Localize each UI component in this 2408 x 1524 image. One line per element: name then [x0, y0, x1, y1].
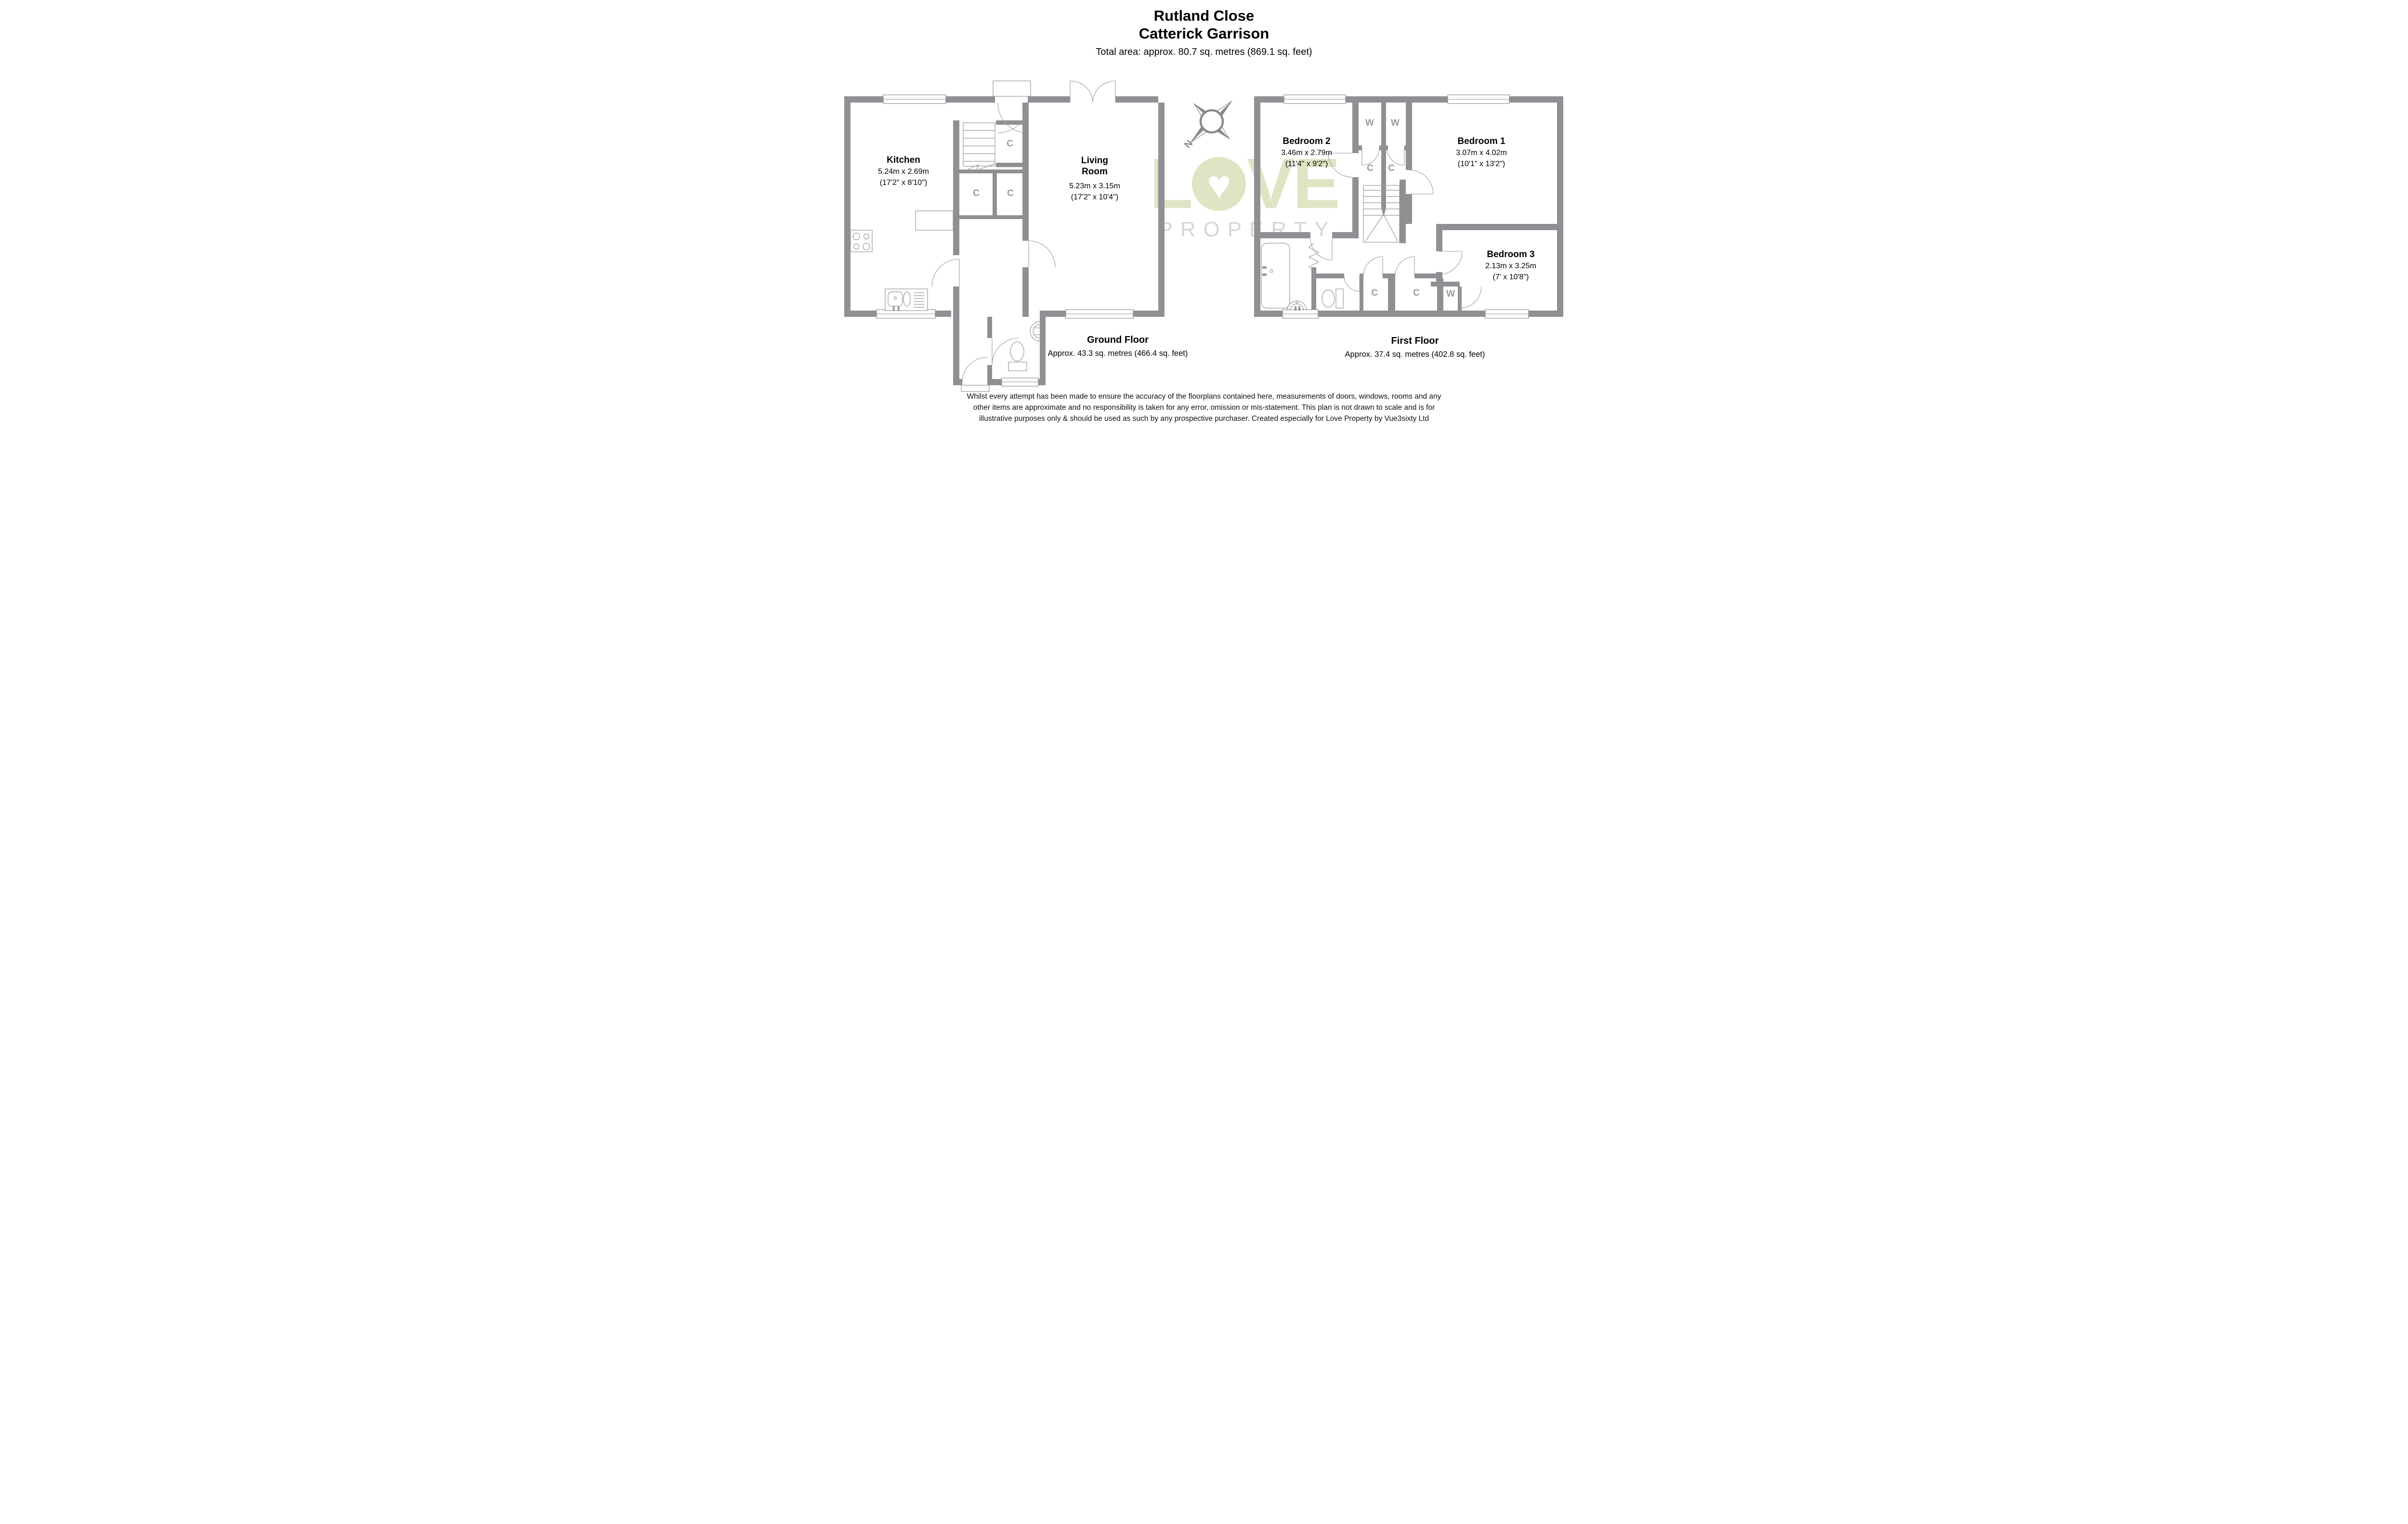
- closet-label: C: [1004, 188, 1017, 199]
- wardrobe-label: W: [1363, 118, 1376, 129]
- kitchen-dims-imperial: (17'2" x 8'10"): [865, 177, 942, 188]
- bedroom3-label: Bedroom 3 2.13m x 3.25m (7' x 10'8"): [1472, 249, 1549, 283]
- bedroom2-label: Bedroom 2 3.46m x 2.79m (11'4" x 9'2"): [1268, 136, 1345, 169]
- disclaimer-line1: Whilst every attempt has been made to en…: [905, 391, 1503, 402]
- kitchen-counter: [916, 211, 953, 230]
- first-floor-title: First Floor: [1343, 336, 1487, 347]
- toilet-icon: [1322, 289, 1343, 308]
- wardrobe2-door-arc: [1387, 148, 1404, 165]
- kitchen-label: Kitchen 5.24m x 2.69m (17'2" x 8'10"): [865, 155, 942, 188]
- french-door-arc-2: [1093, 81, 1115, 102]
- bathtub-icon: [1261, 243, 1290, 308]
- wc-basin-icon: [1030, 322, 1040, 341]
- living-room-name-line2: Room: [1061, 167, 1128, 178]
- bedroom1-door-arc: [1409, 170, 1433, 194]
- closet4-door-arc: [1395, 257, 1414, 276]
- closet-label: C: [970, 188, 982, 199]
- closet-label: C: [1368, 288, 1381, 299]
- wardrobe-label: W: [1389, 118, 1401, 129]
- kitchen-dims-metric: 5.24m x 2.69m: [865, 166, 942, 177]
- first-floor-caption: First Floor Approx. 37.4 sq. metres (402…: [1343, 336, 1487, 359]
- disclaimer: Whilst every attempt has been made to en…: [905, 391, 1503, 424]
- bedroom1-label: Bedroom 1 3.07m x 4.02m (10'1" x 13'2"): [1443, 136, 1520, 169]
- wc-fixtures: [1008, 322, 1040, 371]
- wc-toilet-icon: [1008, 342, 1027, 371]
- first-floor-plan: [1254, 95, 1563, 318]
- basin-icon: [1287, 301, 1307, 311]
- front-porch: [993, 81, 1031, 96]
- french-door-arc: [1070, 81, 1093, 102]
- wardrobe1-door-arc: [1362, 148, 1379, 165]
- kitchen-name: Kitchen: [865, 155, 942, 166]
- ground-floor-title: Ground Floor: [1046, 335, 1190, 346]
- bedroom2-dims-imperial: (11'4" x 9'2"): [1268, 158, 1345, 169]
- bedroom3-name: Bedroom 3: [1472, 249, 1549, 261]
- radiator-icon: [1309, 243, 1319, 271]
- ground-floor-caption: Ground Floor Approx. 43.3 sq. metres (46…: [1046, 335, 1190, 358]
- first-floor-walls: [1254, 96, 1563, 317]
- first-floor-area: Approx. 37.4 sq. metres (402.8 sq. feet): [1343, 350, 1487, 359]
- disclaimer-line2: other items are approximate and no respo…: [905, 402, 1503, 413]
- closet-label: C: [1410, 288, 1423, 299]
- living-room-dims-imperial: (17'2" x 10'4"): [1061, 192, 1128, 203]
- living-door-arc: [1029, 241, 1055, 267]
- bathroom-door-arc: [1310, 238, 1332, 260]
- floorplan-drawing: N: [826, 0, 1582, 430]
- closet-label: C: [1364, 163, 1376, 174]
- living-room-name-line1: Living: [1061, 156, 1128, 167]
- living-room-label: Living Room 5.23m x 3.15m (17'2" x 10'4"…: [1061, 156, 1128, 203]
- bedroom1-dims-imperial: (10'1" x 13'2"): [1443, 158, 1520, 169]
- bedroom3-wardrobe-door-arc: [1460, 287, 1481, 308]
- ground-floor-stairs: [963, 123, 995, 171]
- ground-floor-area: Approx. 43.3 sq. metres (466.4 sq. feet): [1046, 349, 1190, 358]
- wardrobe-label: W: [1444, 289, 1457, 300]
- bedroom2-dims-metric: 3.46m x 2.79m: [1268, 147, 1345, 158]
- bedroom2-name: Bedroom 2: [1268, 136, 1345, 147]
- disclaimer-line3: illustrative purposes only & should be u…: [905, 413, 1503, 424]
- bedroom1-name: Bedroom 1: [1443, 136, 1520, 147]
- closet-label: C: [1004, 139, 1016, 149]
- closet-label: C: [1385, 163, 1398, 174]
- kitchen-fixtures: [851, 211, 953, 311]
- floorplan-page: Rutland Close Catterick Garrison Total a…: [826, 0, 1582, 430]
- compass-icon: N: [1182, 101, 1232, 150]
- sink-icon: [885, 289, 928, 311]
- rear-door-arc: [962, 357, 987, 382]
- bedroom3-dims-imperial: (7' x 10'8"): [1472, 272, 1549, 283]
- bedroom1-dims-metric: 3.07m x 4.02m: [1443, 147, 1520, 158]
- bedroom3-dims-metric: 2.13m x 3.25m: [1472, 261, 1549, 272]
- toilet-nook-door-arc: [1344, 276, 1360, 291]
- bedroom3-door-arc: [1439, 251, 1462, 274]
- kitchen-door-arc: [932, 259, 959, 287]
- living-room-dims-metric: 5.23m x 3.15m: [1061, 181, 1128, 192]
- closet3-door-arc: [1363, 257, 1383, 276]
